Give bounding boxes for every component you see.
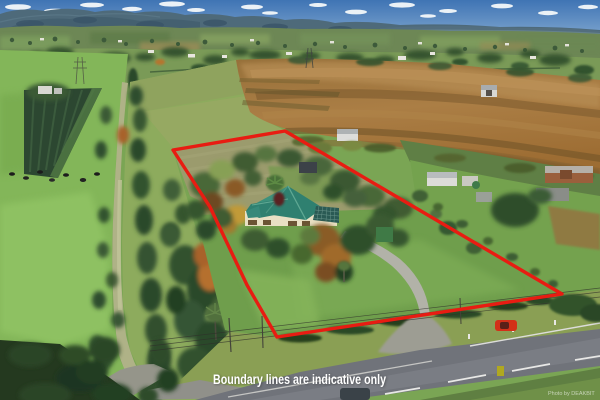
svg-text:Boundary lines are indicative: Boundary lines are indicative only <box>213 371 386 387</box>
svg-text:Photo by DEAKBIT: Photo by DEAKBIT <box>548 391 595 397</box>
